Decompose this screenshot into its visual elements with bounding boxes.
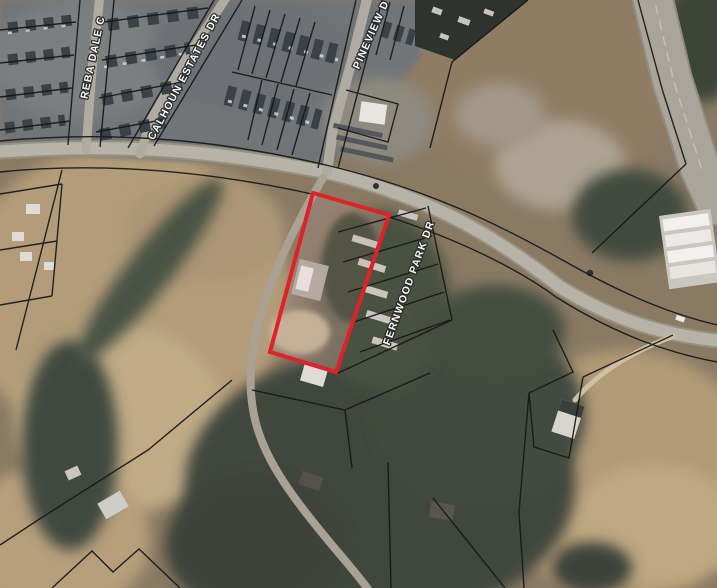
aerial-parcel-map[interactable]: REBA DALE C CALHOUN ESTATES DR PINEVIEW … [0, 0, 717, 588]
map-canvas: REBA DALE C CALHOUN ESTATES DR PINEVIEW … [0, 0, 717, 588]
